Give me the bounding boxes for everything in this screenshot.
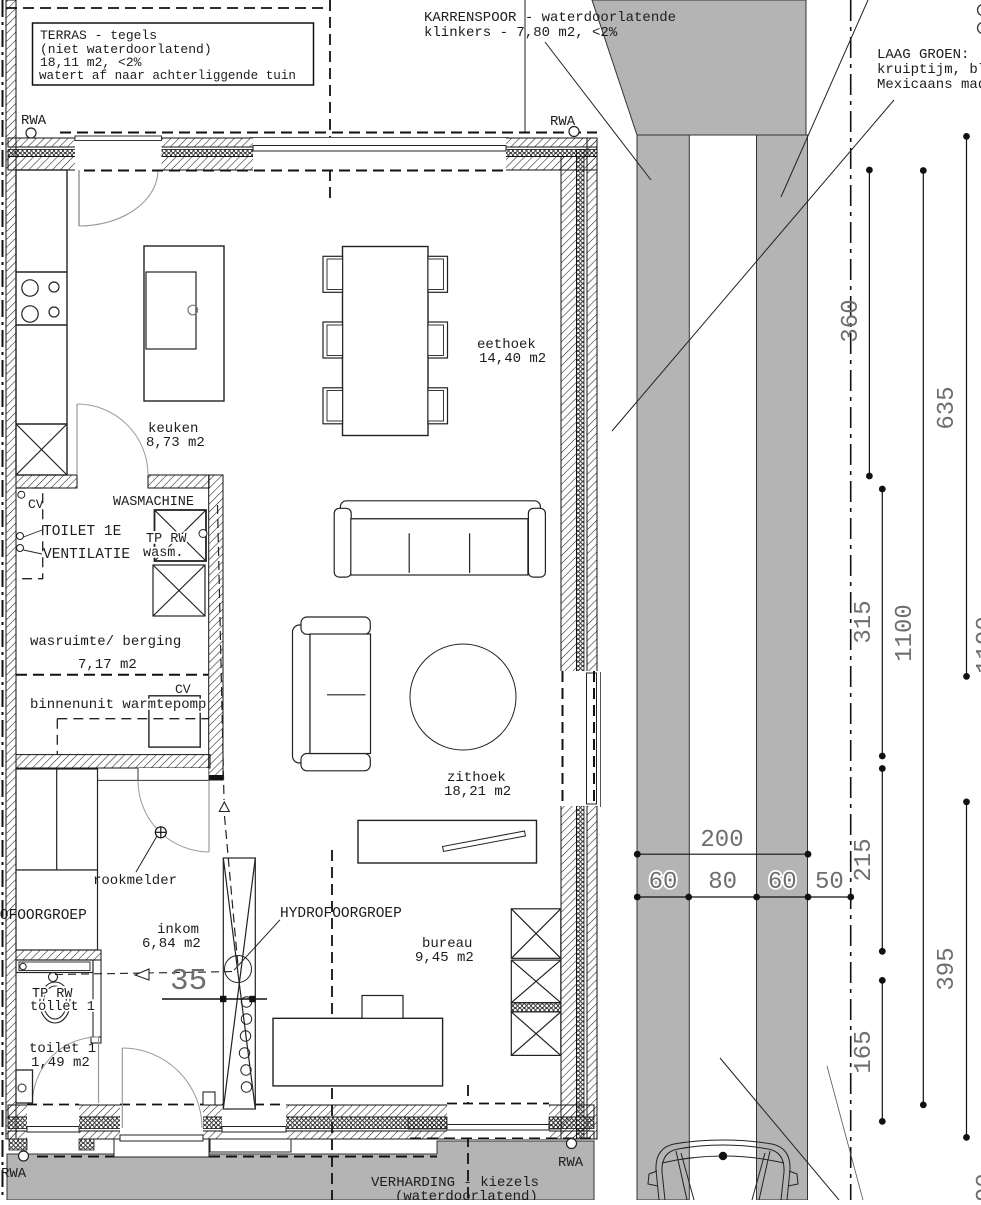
- svg-text:wasruimte/ berging: wasruimte/ berging: [30, 634, 181, 650]
- svg-text:7,17 m2: 7,17 m2: [78, 657, 137, 673]
- svg-text:1190: 1190: [973, 616, 981, 674]
- svg-text:60: 60: [768, 869, 797, 896]
- svg-text:TOILET 1E: TOILET 1E: [43, 524, 121, 540]
- svg-text:LAAG GROEN:: LAAG GROEN:: [877, 47, 969, 63]
- svg-text:kruiptijm, bles: kruiptijm, bles: [877, 62, 981, 78]
- svg-text:395: 395: [934, 947, 961, 990]
- svg-text:VENTILATIE: VENTILATIE: [43, 547, 130, 563]
- svg-text:KARRENSPOOR - waterdoorlatende: KARRENSPOOR - waterdoorlatende: [424, 10, 676, 26]
- svg-text:watert af naar achterliggende: watert af naar achterliggende tuin: [39, 69, 296, 83]
- svg-text:8,73 m2: 8,73 m2: [146, 435, 205, 451]
- svg-text:90: 90: [973, 1173, 981, 1200]
- svg-text:1100: 1100: [892, 604, 919, 662]
- svg-text:binnenunit warmtepomp: binnenunit warmtepomp: [30, 697, 206, 713]
- svg-text:635: 635: [934, 386, 961, 429]
- svg-text:80: 80: [708, 869, 737, 896]
- svg-text:9,45 m2: 9,45 m2: [415, 950, 474, 966]
- svg-text:(waterdoorlatend): (waterdoorlatend): [395, 1189, 538, 1200]
- svg-text:18,21 m2: 18,21 m2: [444, 784, 511, 800]
- svg-text:wasm.: wasm.: [143, 546, 184, 561]
- svg-text:TP RW: TP RW: [146, 532, 187, 547]
- svg-text:HYDROFOORGROEP: HYDROFOORGROEP: [280, 906, 402, 922]
- svg-text:rookmelder: rookmelder: [93, 873, 177, 889]
- svg-text:18,11 m2, <2%: 18,11 m2, <2%: [40, 55, 142, 70]
- svg-text:tollet 1: tollet 1: [30, 1000, 95, 1015]
- svg-text:RWA: RWA: [1, 1166, 27, 1182]
- svg-text:60: 60: [649, 869, 678, 896]
- svg-text:6,84 m2: 6,84 m2: [142, 936, 201, 952]
- svg-text:165: 165: [851, 1030, 878, 1073]
- svg-text:14,40 m2: 14,40 m2: [479, 351, 546, 367]
- svg-text:TERRAS - tegels: TERRAS - tegels: [40, 28, 157, 43]
- svg-text:50: 50: [815, 869, 844, 896]
- svg-text:360: 360: [838, 299, 865, 342]
- svg-text:35: 35: [170, 964, 207, 999]
- svg-text:CV: CV: [175, 682, 191, 697]
- svg-text:1,49 m2: 1,49 m2: [31, 1055, 90, 1071]
- svg-text:200: 200: [700, 827, 743, 854]
- svg-text:WASMACHINE: WASMACHINE: [113, 495, 194, 510]
- svg-text:315: 315: [851, 600, 878, 643]
- svg-text:215: 215: [851, 838, 878, 881]
- svg-text:klinkers - 7,80 m2, <2%: klinkers - 7,80 m2, <2%: [424, 25, 618, 41]
- svg-text:RWA: RWA: [558, 1155, 584, 1171]
- svg-text:Mexicaans made: Mexicaans made: [877, 77, 981, 93]
- svg-text:CV: CV: [28, 497, 44, 512]
- svg-text:HYDROFOORGROEP: HYDROFOORGROEP: [0, 908, 87, 924]
- svg-text:RWA: RWA: [21, 113, 47, 129]
